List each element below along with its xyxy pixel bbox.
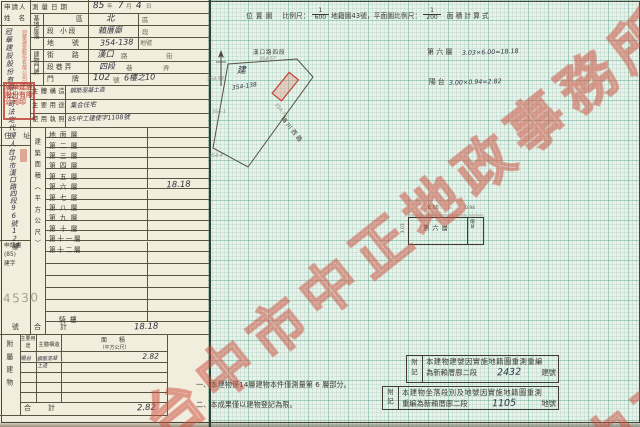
application-doc-suffix: 號	[12, 324, 19, 331]
table-row	[45, 276, 209, 288]
table-row	[45, 288, 209, 300]
usage-label: 主要用途	[32, 103, 67, 109]
table-row	[45, 264, 209, 276]
adjacent-lot-number: 354-59	[207, 78, 224, 83]
structure-value: 鋼筋混凝土造	[70, 88, 105, 95]
table-row: 第六層18.18	[45, 179, 209, 189]
annex-row	[20, 373, 167, 383]
table-line	[30, 61, 210, 62]
license-label: 使用執照	[32, 117, 67, 123]
door-row-label: 街 路	[47, 52, 87, 59]
top-road-label: 漢口路四段	[253, 51, 286, 57]
survey-month: 7	[118, 2, 124, 11]
remark-suffix: 建號	[541, 368, 556, 378]
annex-row: 陽台 鋼筋混凝土造 2.82	[20, 352, 167, 363]
floor-label: 第三層	[45, 148, 148, 157]
floor-label: 第四層	[45, 158, 148, 167]
floor-label: 第九層	[45, 210, 148, 219]
street-value: 漢口	[97, 51, 114, 60]
remark-text: 為新賴厝廍二段	[426, 368, 477, 378]
scale-label: 比例尺：	[282, 10, 309, 20]
site-lot-value: 354-138	[100, 38, 134, 47]
floor-label: 第五層	[45, 169, 148, 178]
door-number-value: 102	[93, 74, 110, 84]
day-unit: 日	[146, 5, 152, 11]
floor-label: 地面層	[45, 127, 148, 137]
floor-label: 第十層	[45, 221, 148, 230]
table-row: 地面層	[45, 127, 209, 138]
annex-area-header: 面 積 （平方公尺）	[62, 334, 167, 351]
parcel-mark: 建	[237, 67, 246, 76]
table-row-qilou: 騎樓	[45, 312, 209, 322]
floor-label: 第七層	[45, 190, 148, 199]
door-row-label: 段巷弄	[47, 64, 73, 71]
table-row: 第十二層	[45, 242, 209, 253]
remark-suffix: 地號	[541, 399, 556, 409]
table-row: 第八層	[45, 200, 209, 210]
site-row-label: 地 號	[47, 40, 87, 47]
table-row: 第五層	[45, 169, 209, 179]
table-row: 第四層	[45, 158, 209, 168]
annex-row	[20, 393, 167, 403]
remark-number: 1105	[492, 398, 517, 410]
applicant-label: 申請人	[4, 4, 27, 11]
floor-area	[148, 157, 209, 169]
site-row-label: 段 小段	[47, 28, 78, 35]
usage-value: 集合住宅	[70, 102, 96, 109]
scale-fraction-600: 1600	[312, 8, 329, 22]
calc-floor-label: 第 六 層	[427, 49, 452, 56]
table-line	[167, 334, 168, 415]
site-district-suffix: 區	[142, 17, 149, 24]
adjacent-lot-number: 354-1	[212, 111, 226, 116]
site-section-suffix: 段	[142, 29, 149, 36]
door-floor-value: 6樓之10	[124, 73, 156, 82]
section-lane-value: 四段	[99, 63, 115, 72]
adjacent-lot-number: 354-4	[209, 155, 223, 160]
application-doc-year: (85)	[4, 253, 16, 259]
remark-box-building-number: 附記 本建物建號因實施地籍圖重測重編 為新賴厝廍二段 2432 建號	[406, 355, 559, 383]
scan-edge	[0, 421, 640, 427]
floor-area	[148, 126, 209, 138]
floor-area	[148, 209, 209, 221]
small-red-stamp	[20, 149, 27, 162]
scale-fraction-200: 1200	[423, 8, 440, 22]
table-row: 第十一層	[45, 231, 209, 241]
company-seal-stamp: 冠華建設股份有限公司印	[3, 82, 35, 120]
remark-text: 本建物坐落段別及地號因實施地籍圖重測	[402, 388, 556, 398]
remark-label: 附記	[383, 387, 399, 409]
site-section-value: 賴厝廍	[98, 27, 122, 36]
annex-row	[20, 363, 167, 373]
table-row	[45, 300, 209, 312]
annex-struct-header: 主體構造	[37, 334, 62, 351]
calc-balcony-label: 陽台	[429, 79, 447, 86]
address-label: 住 址	[4, 133, 35, 140]
remark-box-lot-number: 附記 本建物坐落段別及地號因實施地籍圖重測 重編為新賴厝廍二段 1105 地號	[382, 386, 559, 410]
door-number-suffix: 號	[113, 77, 120, 84]
floor-area	[148, 240, 209, 252]
application-doc-label: 申請書	[4, 244, 21, 250]
table-row: 第二層	[45, 138, 209, 148]
map-header: 位置圖 比例尺： 1600 地籍圖43號，平面圖比例尺： 1200 面積計算式	[246, 8, 491, 22]
table-line	[30, 99, 210, 100]
floor-area: 18.18	[148, 178, 209, 190]
plan-dim-width: 6.00	[428, 207, 439, 212]
qilou-label: 騎樓	[45, 312, 148, 321]
location-map-title: 位置圖	[246, 10, 275, 20]
table-line	[30, 73, 210, 74]
plan-balcony-label: 陽台	[469, 219, 474, 241]
lane-suffix: 巷 弄	[126, 65, 182, 72]
application-doc-type: 建字	[4, 262, 16, 268]
site-strip-label: 基地座落	[32, 15, 38, 48]
table-line	[30, 49, 210, 50]
floor-label: 第十二層	[45, 242, 148, 252]
remark-text: 本建物建號因實施地籍圖重測重編	[426, 357, 556, 367]
floor-label: 第六層	[45, 179, 148, 188]
month-unit: 月	[126, 5, 132, 11]
remark-text: 重編為新賴厝廍二段	[402, 399, 468, 409]
survey-year: 85	[93, 2, 105, 11]
remark-label: 附記	[407, 356, 423, 382]
door-strip-label: 建物門牌	[32, 51, 38, 84]
remark-number: 2432	[497, 367, 522, 379]
top-road-number: 354-57	[259, 58, 276, 63]
floor-label: 第八層	[45, 200, 148, 209]
structure-label: 主體構造	[32, 89, 67, 95]
plan-main-label: 第六層	[423, 226, 451, 232]
annex-use: 陽台	[20, 352, 37, 363]
area-strip-label: 建築面積（平方公尺）	[33, 138, 39, 303]
annex-strip-label: 附屬建物	[5, 340, 12, 412]
floor-area	[148, 230, 209, 242]
plan-dim-height: 3.03	[402, 223, 407, 233]
site-lot-suffix: 地號	[140, 41, 152, 47]
area-calc-title: 面積計算式	[447, 10, 491, 20]
door-row-label: 門 牌	[47, 76, 87, 83]
area-total-label: 合 計	[34, 324, 73, 331]
table-row	[45, 252, 209, 264]
year-unit: 年	[107, 5, 113, 11]
annex-use-header: 主要用途	[20, 334, 37, 351]
table-line	[30, 0, 31, 334]
site-district-value: 北	[106, 15, 115, 24]
note-line-2: 二、本成果僅以建物登記為限。	[196, 401, 297, 408]
table-row: 第三層	[45, 148, 209, 158]
annex-row	[20, 383, 167, 393]
table-row: 第七層	[45, 190, 209, 200]
street-suffix: 路 街	[121, 53, 189, 60]
annex-struct: 鋼筋混凝土造	[37, 352, 62, 363]
note-line-1: 一、本建物係14層建物本件僅測量第 6 層部分。	[196, 381, 351, 388]
floor-label: 第十一層	[45, 231, 148, 240]
survey-day: 4	[136, 2, 142, 11]
table-row: 第十層	[45, 221, 209, 231]
annex-header-row: 主要用途 主體構造 面 積 （平方公尺）	[20, 334, 167, 352]
table-line	[30, 13, 210, 14]
area-total-value: 18.18	[134, 323, 159, 332]
annex-area: 2.82	[62, 350, 167, 364]
annex-total-value: 2.82	[137, 404, 156, 413]
table-line	[138, 13, 139, 49]
survey-date-label: 測量日期	[32, 4, 70, 11]
scanned-survey-form: 申請人 姓 名 測量日期 85 年 7 月 4 日 冠華建設股份有限公司法定代理…	[0, 0, 640, 427]
cadastral-sheet-label: 地籍圖43號，平面圖比例尺：	[331, 10, 421, 20]
applicant-seal-strip: 冠華建設股份有限公司印	[21, 30, 26, 80]
table-row: 第九層	[45, 210, 209, 220]
table-line	[0, 415, 168, 416]
floor-label: 第二層	[45, 138, 148, 147]
applicant-name-label: 姓 名	[4, 15, 28, 22]
site-row-label: 區	[76, 16, 83, 23]
plan-dim-balcony-width: 0.94	[465, 207, 475, 212]
annex-total-label: 合 計	[24, 405, 60, 412]
